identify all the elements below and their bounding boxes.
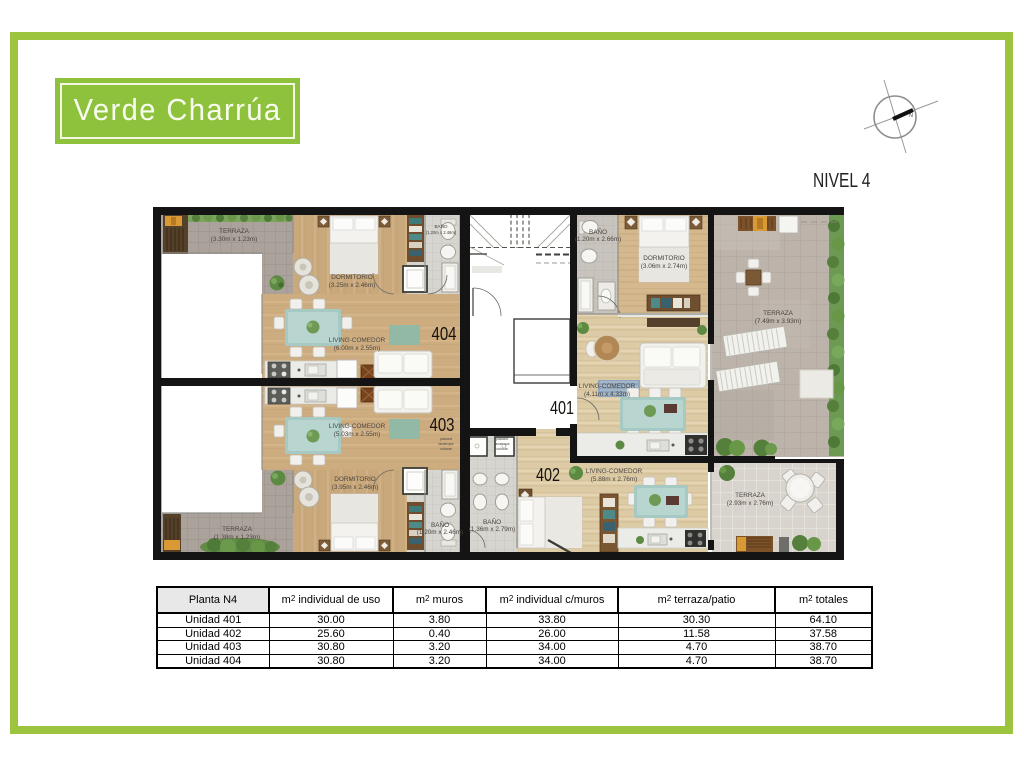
svg-text:402: 402 <box>536 465 560 485</box>
svg-text:403: 403 <box>430 415 455 435</box>
svg-text:BAÑO: BAÑO <box>483 517 501 526</box>
svg-text:(1.20m x 2.66m): (1.20m x 2.66m) <box>575 236 622 243</box>
svg-text:BAÑO: BAÑO <box>431 520 449 529</box>
svg-text:(3.30m x 1.23m): (3.30m x 1.23m) <box>211 236 258 243</box>
svg-text:(3.25m x 2.46m): (3.25m x 2.46m) <box>329 282 376 289</box>
svg-text:(1.36m x 2.79m): (1.36m x 2.79m) <box>469 526 516 533</box>
svg-text:(5.88m x 2.76m): (5.88m x 2.76m) <box>591 476 638 483</box>
svg-text:TERRAZA: TERRAZA <box>219 228 250 235</box>
svg-text:(7.49m x 3.93m): (7.49m x 3.93m) <box>755 318 802 325</box>
svg-text:401: 401 <box>550 398 574 418</box>
svg-text:TERRAZA: TERRAZA <box>222 526 253 533</box>
svg-text:(2.93m x 2.76m): (2.93m x 2.76m) <box>727 500 774 507</box>
svg-text:BAÑO: BAÑO <box>434 223 447 229</box>
svg-text:(6.00m x 2.55m): (6.00m x 2.55m) <box>334 345 381 352</box>
svg-text:(3.95m x 2.46m): (3.95m x 2.46m) <box>332 484 379 491</box>
svg-text:DORMITORIO: DORMITORIO <box>334 476 375 483</box>
svg-text:placard: placard <box>496 437 508 441</box>
svg-text:(3.06m x 2.74m): (3.06m x 2.74m) <box>641 263 688 270</box>
svg-text:LIVING-COMEDOR: LIVING-COMEDOR <box>329 423 386 430</box>
svg-text:LIVING-COMEDOR: LIVING-COMEDOR <box>579 383 636 390</box>
svg-text:(5.03m x 2.55m): (5.03m x 2.55m) <box>334 431 381 438</box>
svg-text:TERRAZA: TERRAZA <box>763 310 794 317</box>
svg-text:lavarropa: lavarropa <box>439 442 454 446</box>
svg-text:N: N <box>909 113 913 119</box>
svg-text:LIVING-COMEDOR: LIVING-COMEDOR <box>586 468 643 475</box>
svg-text:(1.20m x 2.46m): (1.20m x 2.46m) <box>426 230 457 235</box>
svg-text:BAÑO: BAÑO <box>589 227 607 236</box>
svg-text:colocar: colocar <box>440 447 452 451</box>
svg-text:TERRAZA: TERRAZA <box>735 492 766 499</box>
svg-text:DORMITORIO: DORMITORIO <box>331 274 372 281</box>
svg-text:LIVING-COMEDOR: LIVING-COMEDOR <box>329 337 386 344</box>
svg-text:colocar: colocar <box>496 447 508 451</box>
svg-text:(1.20m x 2.46m): (1.20m x 2.46m) <box>417 529 464 536</box>
svg-text:(1.38m x 1.23m): (1.38m x 1.23m) <box>214 534 261 541</box>
svg-text:(4.11m x 4.33m): (4.11m x 4.33m) <box>584 391 630 398</box>
svg-text:lavarropa: lavarropa <box>495 442 510 446</box>
svg-text:placard: placard <box>440 437 452 441</box>
svg-text:DORMITORIO: DORMITORIO <box>643 255 684 262</box>
svg-text:404: 404 <box>432 324 457 344</box>
